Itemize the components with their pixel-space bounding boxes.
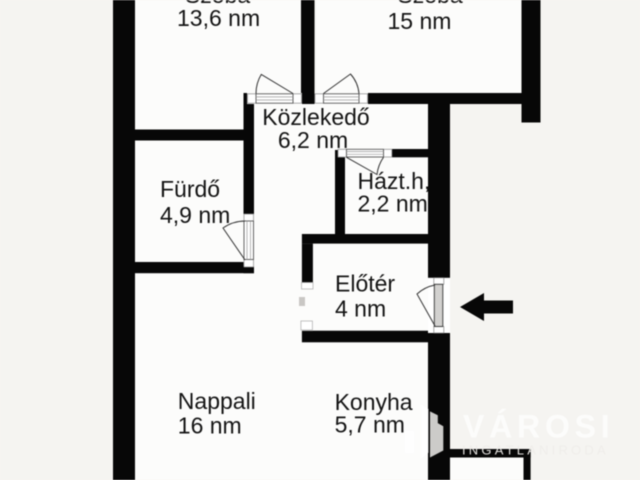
svg-text:15 nm: 15 nm bbox=[388, 8, 452, 34]
svg-text:Fürdő: Fürdő bbox=[160, 176, 220, 202]
svg-text:6,2 nm: 6,2 nm bbox=[278, 127, 348, 153]
svg-text:Szoba: Szoba bbox=[397, 0, 462, 8]
svg-text:VÁROSI: VÁROSI bbox=[463, 408, 615, 444]
svg-text:4,9 nm: 4,9 nm bbox=[160, 202, 230, 228]
svg-text:5,7 nm: 5,7 nm bbox=[335, 411, 405, 437]
svg-text:INGATLANIRODA: INGATLANIRODA bbox=[462, 443, 609, 458]
svg-text:Előtér: Előtér bbox=[335, 270, 395, 296]
svg-text:4 nm: 4 nm bbox=[335, 295, 386, 321]
svg-text:13,6 nm: 13,6 nm bbox=[177, 5, 260, 31]
svg-text:16 nm: 16 nm bbox=[178, 412, 242, 438]
svg-text:2,2 nm: 2,2 nm bbox=[358, 190, 428, 216]
svg-text:Nappali: Nappali bbox=[178, 388, 256, 414]
